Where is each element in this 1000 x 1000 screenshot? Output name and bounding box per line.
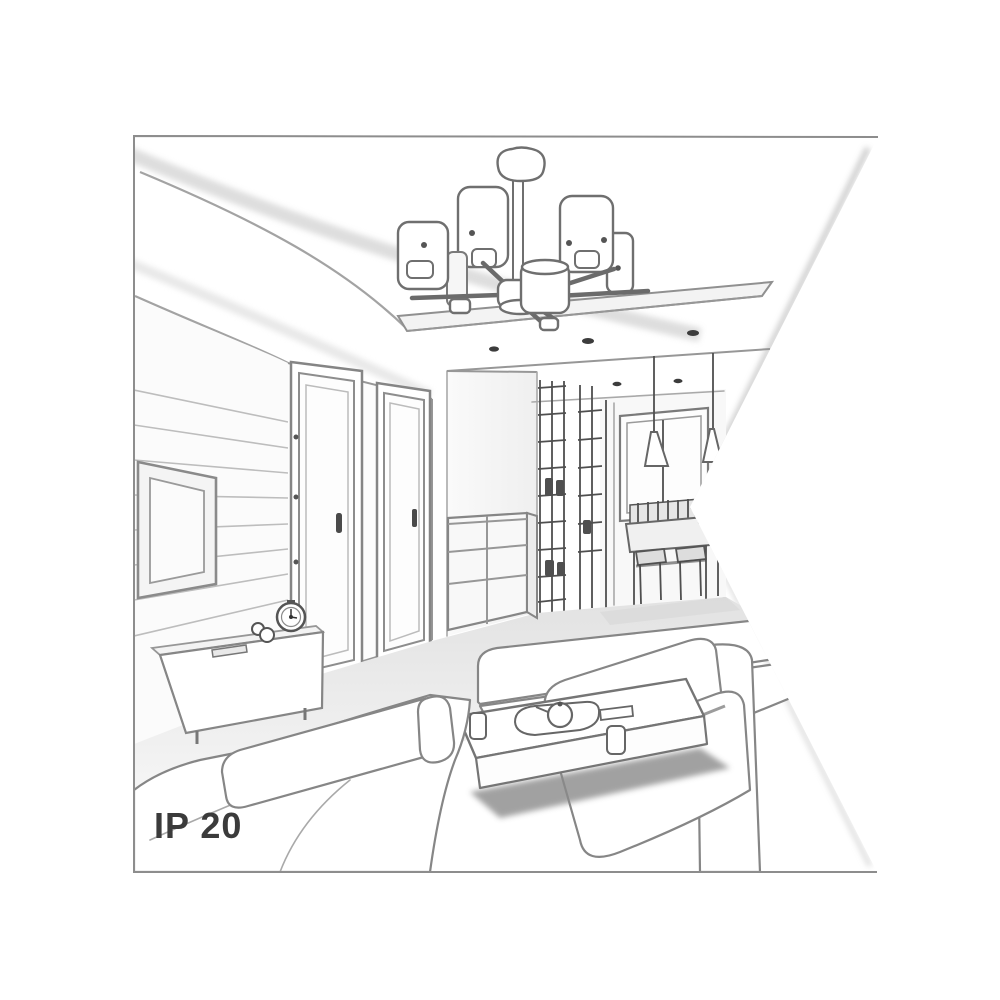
shelf-item (557, 562, 565, 576)
shelf-item (556, 480, 564, 496)
recessed-spotlight (613, 382, 622, 386)
door-handle (336, 513, 342, 533)
arm-connector (450, 299, 470, 313)
arm-connector (540, 318, 558, 330)
door-handle (412, 509, 417, 527)
shelf-item (545, 560, 554, 576)
chandelier-arm (412, 295, 500, 298)
room-sketch: IP 20 (0, 0, 1000, 1000)
chandelier-canopy (498, 148, 545, 182)
chandelier-shade (560, 196, 613, 272)
hinge-dot (294, 495, 299, 500)
product-illustration: IP 20 (0, 0, 1000, 1000)
recessed-spotlight (582, 338, 594, 344)
hinge-dot (294, 435, 299, 440)
shelf-item (583, 520, 591, 534)
recessed-spotlight (687, 330, 699, 336)
tv (138, 462, 216, 598)
hinge-dot (294, 560, 299, 565)
recessed-spotlight (489, 346, 499, 351)
recessed-spotlight (674, 379, 683, 383)
chandelier-shade (521, 260, 569, 313)
chest-of-drawers (448, 513, 537, 630)
chandelier-shade (398, 222, 448, 289)
door-right (377, 383, 430, 661)
shelf-item (545, 478, 553, 496)
ip-rating-label: IP 20 (154, 805, 242, 846)
cup (470, 713, 486, 739)
cup (607, 726, 625, 754)
